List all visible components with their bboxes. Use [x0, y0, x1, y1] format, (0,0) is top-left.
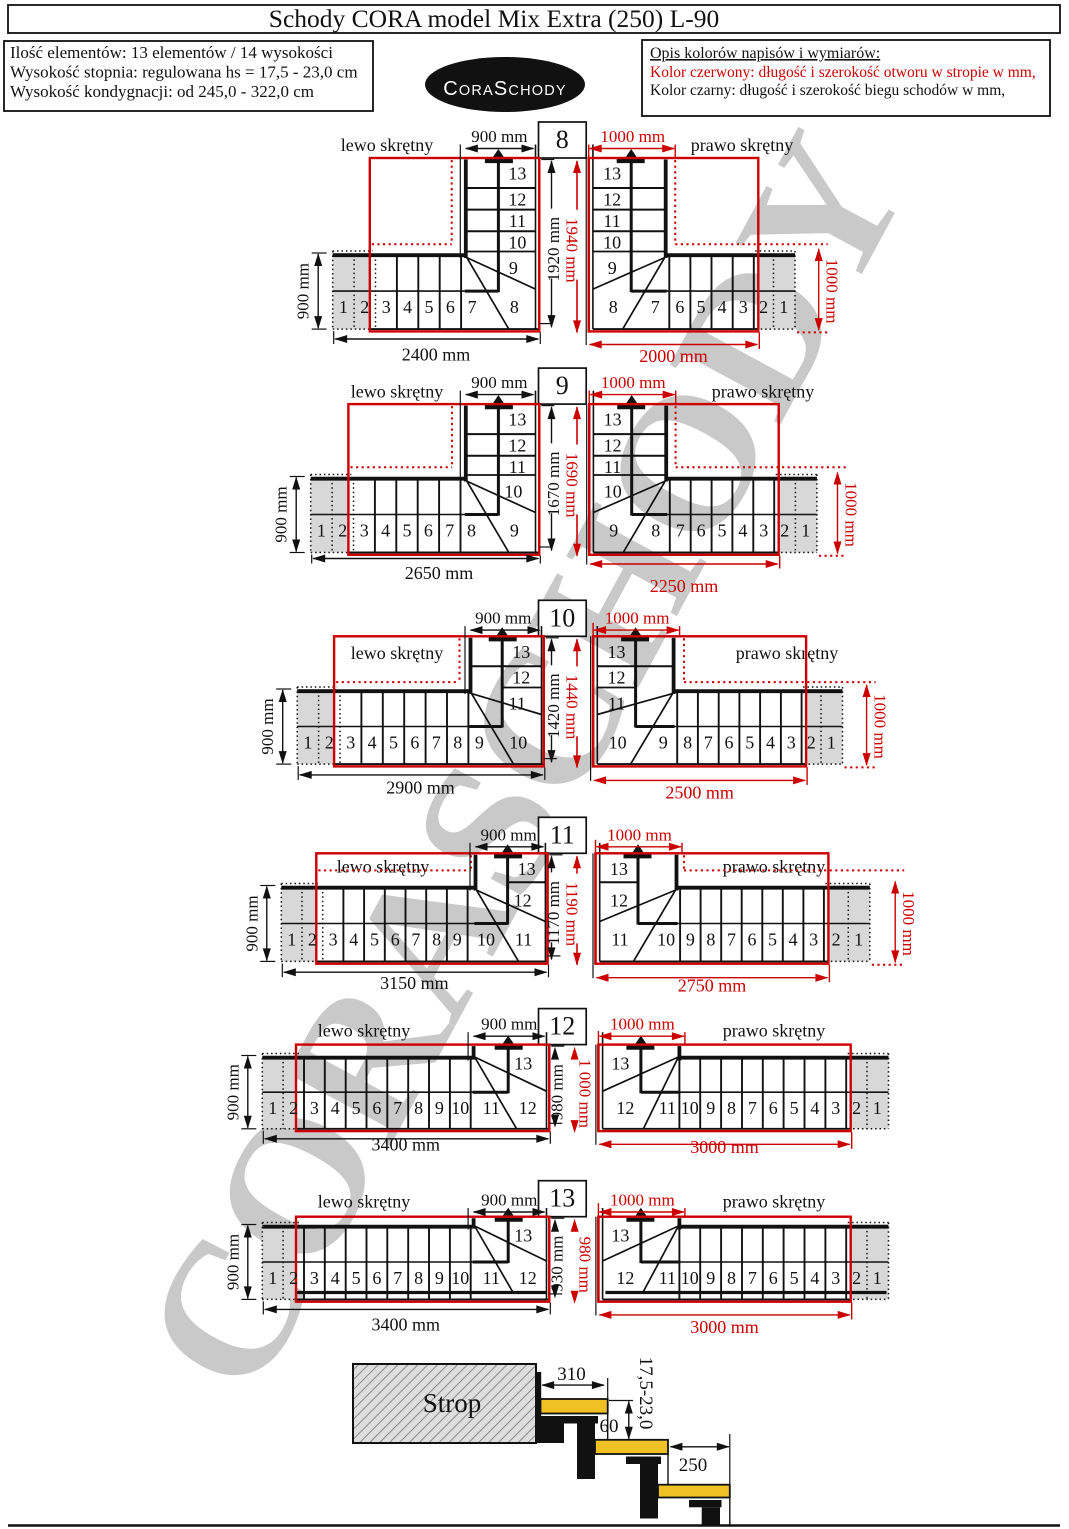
svg-text:1000 mm: 1000 mm	[601, 373, 666, 392]
svg-text:1 000 mm: 1 000 mm	[576, 1059, 595, 1128]
svg-text:prawo skrętny: prawo skrętny	[723, 857, 825, 877]
svg-text:900 mm: 900 mm	[475, 609, 531, 628]
svg-text:5: 5	[352, 1268, 361, 1288]
svg-text:11: 11	[659, 1098, 676, 1118]
svg-text:8: 8	[467, 521, 476, 541]
svg-text:3: 3	[809, 930, 818, 950]
svg-text:5: 5	[768, 930, 777, 950]
svg-text:2: 2	[807, 733, 816, 753]
svg-text:900 mm: 900 mm	[481, 1191, 537, 1210]
svg-text:310: 310	[557, 1364, 586, 1385]
svg-text:10: 10	[451, 1268, 469, 1288]
svg-text:8: 8	[651, 521, 660, 541]
svg-text:prawo skrętny: prawo skrętny	[712, 382, 814, 402]
svg-text:1000 mm: 1000 mm	[823, 259, 842, 324]
svg-text:3: 3	[831, 1098, 840, 1118]
svg-text:1: 1	[827, 733, 836, 753]
svg-text:prawo skrętny: prawo skrętny	[723, 1021, 825, 1041]
svg-text:7: 7	[411, 930, 420, 950]
svg-text:8: 8	[727, 1098, 736, 1118]
svg-text:5: 5	[745, 733, 754, 753]
svg-text:10: 10	[681, 1098, 699, 1118]
svg-text:4: 4	[789, 930, 798, 950]
svg-text:1: 1	[801, 521, 810, 541]
svg-text:8: 8	[609, 297, 618, 317]
svg-text:11: 11	[550, 820, 575, 849]
svg-text:12: 12	[508, 435, 526, 455]
svg-text:12: 12	[608, 668, 626, 688]
svg-text:prawo skrętny: prawo skrętny	[691, 135, 793, 155]
svg-text:1: 1	[268, 1098, 277, 1118]
svg-text:lewo skrętny: lewo skrętny	[318, 1192, 410, 1212]
svg-text:5: 5	[352, 1098, 361, 1118]
svg-text:1000 mm: 1000 mm	[842, 482, 861, 547]
svg-text:13: 13	[508, 164, 526, 184]
svg-text:10: 10	[504, 482, 522, 502]
svg-text:3000 mm: 3000 mm	[690, 1137, 759, 1157]
svg-text:1440 mm: 1440 mm	[563, 675, 582, 740]
svg-text:lewo skrętny: lewo skrętny	[351, 382, 443, 402]
svg-text:11: 11	[604, 457, 621, 477]
svg-text:9: 9	[608, 258, 617, 278]
svg-text:13: 13	[512, 642, 530, 662]
svg-text:8: 8	[556, 125, 569, 154]
svg-text:3: 3	[759, 521, 768, 541]
svg-text:900 mm: 900 mm	[242, 895, 261, 951]
svg-text:3: 3	[787, 733, 796, 753]
svg-text:Ilość elementów: 13 elementów: Ilość elementów: 13 elementów / 14 wysok…	[10, 43, 333, 62]
svg-text:17,5-23,0: 17,5-23,0	[635, 1357, 656, 1430]
svg-text:5: 5	[790, 1098, 799, 1118]
svg-text:Wysokość kondygnacji: od 245,0: Wysokość kondygnacji: od 245,0 - 322,0 c…	[10, 82, 314, 101]
svg-text:7: 7	[445, 521, 454, 541]
svg-text:12: 12	[603, 189, 621, 209]
svg-text:900 mm: 900 mm	[258, 698, 277, 754]
svg-text:6: 6	[748, 930, 757, 950]
svg-text:12: 12	[508, 189, 526, 209]
svg-text:1: 1	[303, 733, 312, 753]
svg-text:7: 7	[651, 297, 660, 317]
svg-text:4: 4	[766, 733, 775, 753]
svg-text:10: 10	[509, 733, 527, 753]
svg-text:3150 mm: 3150 mm	[380, 973, 449, 993]
svg-text:4: 4	[738, 521, 747, 541]
svg-text:13: 13	[608, 642, 626, 662]
svg-text:12: 12	[549, 1012, 575, 1041]
svg-text:2: 2	[338, 521, 347, 541]
svg-text:3400 mm: 3400 mm	[372, 1315, 441, 1335]
svg-text:8: 8	[453, 733, 462, 753]
svg-text:Kolor czarny: długość i szerok: Kolor czarny: długość i szerokość biegu …	[650, 82, 1005, 99]
svg-text:9: 9	[706, 1268, 715, 1288]
svg-text:10: 10	[451, 1098, 469, 1118]
svg-text:900 mm: 900 mm	[480, 825, 536, 844]
svg-text:12: 12	[616, 1268, 634, 1288]
svg-text:9: 9	[556, 371, 569, 400]
svg-text:1420 mm: 1420 mm	[544, 673, 563, 738]
svg-text:11: 11	[509, 211, 526, 231]
svg-text:10: 10	[609, 733, 627, 753]
svg-text:1920 mm: 1920 mm	[544, 217, 563, 282]
svg-text:7: 7	[748, 1268, 757, 1288]
svg-text:10: 10	[604, 482, 622, 502]
svg-text:8: 8	[727, 1268, 736, 1288]
svg-text:1000 mm: 1000 mm	[610, 1015, 675, 1034]
svg-text:11: 11	[659, 1268, 676, 1288]
svg-text:7: 7	[468, 297, 477, 317]
svg-text:3: 3	[831, 1268, 840, 1288]
svg-text:1000 mm: 1000 mm	[899, 891, 918, 956]
svg-text:1: 1	[339, 297, 348, 317]
svg-text:13: 13	[611, 1054, 629, 1074]
svg-text:1: 1	[779, 297, 788, 317]
svg-text:1670 mm: 1670 mm	[544, 452, 563, 517]
svg-text:5: 5	[389, 733, 398, 753]
svg-text:3000 mm: 3000 mm	[690, 1317, 759, 1337]
svg-text:2: 2	[832, 930, 841, 950]
svg-text:1: 1	[873, 1098, 882, 1118]
svg-text:250: 250	[679, 1455, 708, 1476]
svg-text:4: 4	[331, 1268, 340, 1288]
svg-text:Opis kolorów napisów i wymiaró: Opis kolorów napisów i wymiarów:	[650, 45, 880, 62]
svg-text:6: 6	[410, 733, 419, 753]
svg-text:900 mm: 900 mm	[223, 1064, 242, 1120]
svg-text:1: 1	[287, 930, 296, 950]
svg-text:2: 2	[289, 1268, 298, 1288]
svg-text:12: 12	[512, 668, 530, 688]
svg-text:13: 13	[514, 1226, 532, 1246]
svg-text:1000 mm: 1000 mm	[610, 1191, 675, 1210]
svg-text:10: 10	[603, 233, 621, 253]
svg-text:8: 8	[432, 930, 441, 950]
svg-text:3: 3	[310, 1098, 319, 1118]
svg-text:10: 10	[477, 930, 495, 950]
svg-text:2900 mm: 2900 mm	[386, 778, 455, 798]
svg-text:1940 mm: 1940 mm	[563, 218, 582, 283]
svg-text:2: 2	[780, 521, 789, 541]
svg-text:8: 8	[683, 733, 692, 753]
svg-text:11: 11	[515, 930, 532, 950]
svg-text:11: 11	[509, 457, 526, 477]
svg-text:7: 7	[676, 521, 685, 541]
svg-text:900 mm: 900 mm	[294, 263, 313, 319]
svg-text:5: 5	[403, 521, 412, 541]
svg-text:11: 11	[611, 930, 628, 950]
svg-text:6: 6	[391, 930, 400, 950]
svg-text:7: 7	[393, 1268, 402, 1288]
svg-text:6: 6	[372, 1268, 381, 1288]
svg-text:2: 2	[289, 1098, 298, 1118]
svg-text:13: 13	[603, 164, 621, 184]
svg-text:9: 9	[706, 1098, 715, 1118]
svg-text:900 mm: 900 mm	[471, 127, 527, 146]
svg-text:6: 6	[769, 1268, 778, 1288]
svg-text:9: 9	[435, 1098, 444, 1118]
svg-text:9: 9	[475, 733, 484, 753]
svg-text:Kolor czerwony: długość i szer: Kolor czerwony: długość i szerokość otwo…	[650, 64, 1036, 81]
svg-text:lewo skrętny: lewo skrętny	[318, 1021, 410, 1041]
svg-text:2750 mm: 2750 mm	[678, 976, 747, 996]
svg-text:8: 8	[510, 297, 519, 317]
svg-text:2500 mm: 2500 mm	[665, 783, 734, 803]
svg-text:3: 3	[346, 733, 355, 753]
svg-text:2: 2	[852, 1268, 861, 1288]
svg-text:10: 10	[508, 233, 526, 253]
svg-text:3: 3	[329, 930, 338, 950]
svg-text:2: 2	[325, 733, 334, 753]
svg-text:12: 12	[604, 435, 622, 455]
svg-text:lewo skrętny: lewo skrętny	[337, 857, 429, 877]
svg-text:2: 2	[308, 930, 317, 950]
svg-text:Strop: Strop	[423, 1388, 482, 1418]
svg-text:9: 9	[509, 258, 518, 278]
svg-text:13: 13	[611, 1226, 629, 1246]
svg-text:10: 10	[657, 930, 675, 950]
svg-text:9: 9	[510, 521, 519, 541]
svg-text:7: 7	[748, 1098, 757, 1118]
svg-text:10: 10	[549, 603, 575, 632]
svg-text:7: 7	[704, 733, 713, 753]
svg-text:2400 mm: 2400 mm	[402, 345, 471, 365]
svg-text:4: 4	[810, 1268, 819, 1288]
svg-text:13: 13	[518, 859, 536, 879]
svg-text:1000 mm: 1000 mm	[607, 825, 672, 844]
svg-text:1: 1	[268, 1268, 277, 1288]
svg-text:prawo skrętny: prawo skrętny	[723, 1192, 825, 1212]
svg-text:12: 12	[616, 1098, 634, 1118]
svg-text:11: 11	[608, 694, 625, 714]
svg-text:8: 8	[414, 1098, 423, 1118]
svg-text:7: 7	[432, 733, 441, 753]
svg-text:5: 5	[790, 1268, 799, 1288]
svg-text:6: 6	[697, 521, 706, 541]
svg-text:5: 5	[370, 930, 379, 950]
svg-text:1: 1	[317, 521, 326, 541]
svg-text:6: 6	[769, 1098, 778, 1118]
svg-text:Schody CORA model Mix Extra (2: Schody CORA model Mix Extra (250) L-90	[269, 4, 719, 33]
svg-text:2250 mm: 2250 mm	[650, 576, 719, 596]
svg-text:900 mm: 900 mm	[471, 373, 527, 392]
svg-text:6: 6	[372, 1098, 381, 1118]
svg-text:5: 5	[718, 521, 727, 541]
svg-text:2000 mm: 2000 mm	[639, 346, 708, 366]
svg-text:10: 10	[681, 1268, 699, 1288]
svg-text:6: 6	[446, 297, 455, 317]
svg-text:9: 9	[659, 733, 668, 753]
svg-text:4: 4	[331, 1098, 340, 1118]
svg-text:13: 13	[549, 1184, 575, 1213]
svg-text:4: 4	[403, 297, 412, 317]
svg-text:prawo skrętny: prawo skrętny	[736, 643, 838, 663]
svg-text:11: 11	[483, 1268, 500, 1288]
svg-text:5: 5	[425, 297, 434, 317]
svg-text:930 mm: 930 mm	[548, 1236, 567, 1292]
svg-text:2: 2	[759, 297, 768, 317]
svg-text:6: 6	[725, 733, 734, 753]
svg-text:8: 8	[706, 930, 715, 950]
svg-text:900 mm: 900 mm	[481, 1015, 537, 1034]
svg-text:11: 11	[603, 211, 620, 231]
svg-text:9: 9	[435, 1268, 444, 1288]
svg-text:4: 4	[810, 1098, 819, 1118]
svg-text:9: 9	[609, 521, 618, 541]
svg-text:9: 9	[686, 930, 695, 950]
svg-text:6: 6	[424, 521, 433, 541]
svg-text:9: 9	[453, 930, 462, 950]
svg-text:13: 13	[508, 410, 526, 430]
svg-text:4: 4	[349, 930, 358, 950]
svg-text:12: 12	[514, 891, 532, 911]
svg-text:12: 12	[610, 891, 628, 911]
svg-text:3: 3	[310, 1268, 319, 1288]
svg-text:13: 13	[514, 1054, 532, 1074]
svg-text:2: 2	[360, 297, 369, 317]
svg-text:13: 13	[604, 410, 622, 430]
svg-text:11: 11	[483, 1098, 500, 1118]
svg-text:900 mm: 900 mm	[272, 486, 291, 542]
svg-text:1190 mm: 1190 mm	[563, 882, 582, 946]
svg-text:lewo skrętny: lewo skrętny	[341, 135, 433, 155]
svg-text:13: 13	[610, 859, 628, 879]
svg-text:3400 mm: 3400 mm	[372, 1135, 441, 1155]
svg-text:900 mm: 900 mm	[223, 1234, 242, 1290]
svg-text:1: 1	[873, 1268, 882, 1288]
svg-text:1170 mm: 1170 mm	[544, 881, 563, 945]
svg-text:12: 12	[519, 1268, 537, 1288]
svg-text:5: 5	[697, 297, 706, 317]
svg-text:12: 12	[519, 1098, 537, 1118]
svg-text:7: 7	[727, 930, 736, 950]
svg-text:60: 60	[600, 1416, 619, 1437]
svg-text:1690 mm: 1690 mm	[563, 453, 582, 518]
svg-text:3: 3	[382, 297, 391, 317]
svg-text:980 mm: 980 mm	[576, 1237, 595, 1293]
svg-text:Wysokość stopnia: regulowana: Wysokość stopnia: regulowana hs = 17,5 -…	[10, 63, 358, 82]
svg-text:11: 11	[509, 694, 526, 714]
svg-text:7: 7	[393, 1098, 402, 1118]
svg-text:1000 mm: 1000 mm	[605, 609, 670, 628]
svg-text:3: 3	[739, 297, 748, 317]
svg-text:lewo skrętny: lewo skrętny	[351, 643, 443, 663]
svg-text:3: 3	[360, 521, 369, 541]
svg-text:980 mm: 980 mm	[548, 1064, 567, 1120]
svg-text:6: 6	[675, 297, 684, 317]
svg-text:4: 4	[381, 521, 390, 541]
svg-text:4: 4	[368, 733, 377, 753]
svg-text:1000 mm: 1000 mm	[871, 694, 890, 759]
svg-text:4: 4	[718, 297, 727, 317]
svg-text:1000 mm: 1000 mm	[600, 127, 665, 146]
svg-text:2650 mm: 2650 mm	[405, 563, 474, 583]
svg-text:1: 1	[854, 930, 863, 950]
svg-text:8: 8	[414, 1268, 423, 1288]
svg-text:2: 2	[852, 1098, 861, 1118]
